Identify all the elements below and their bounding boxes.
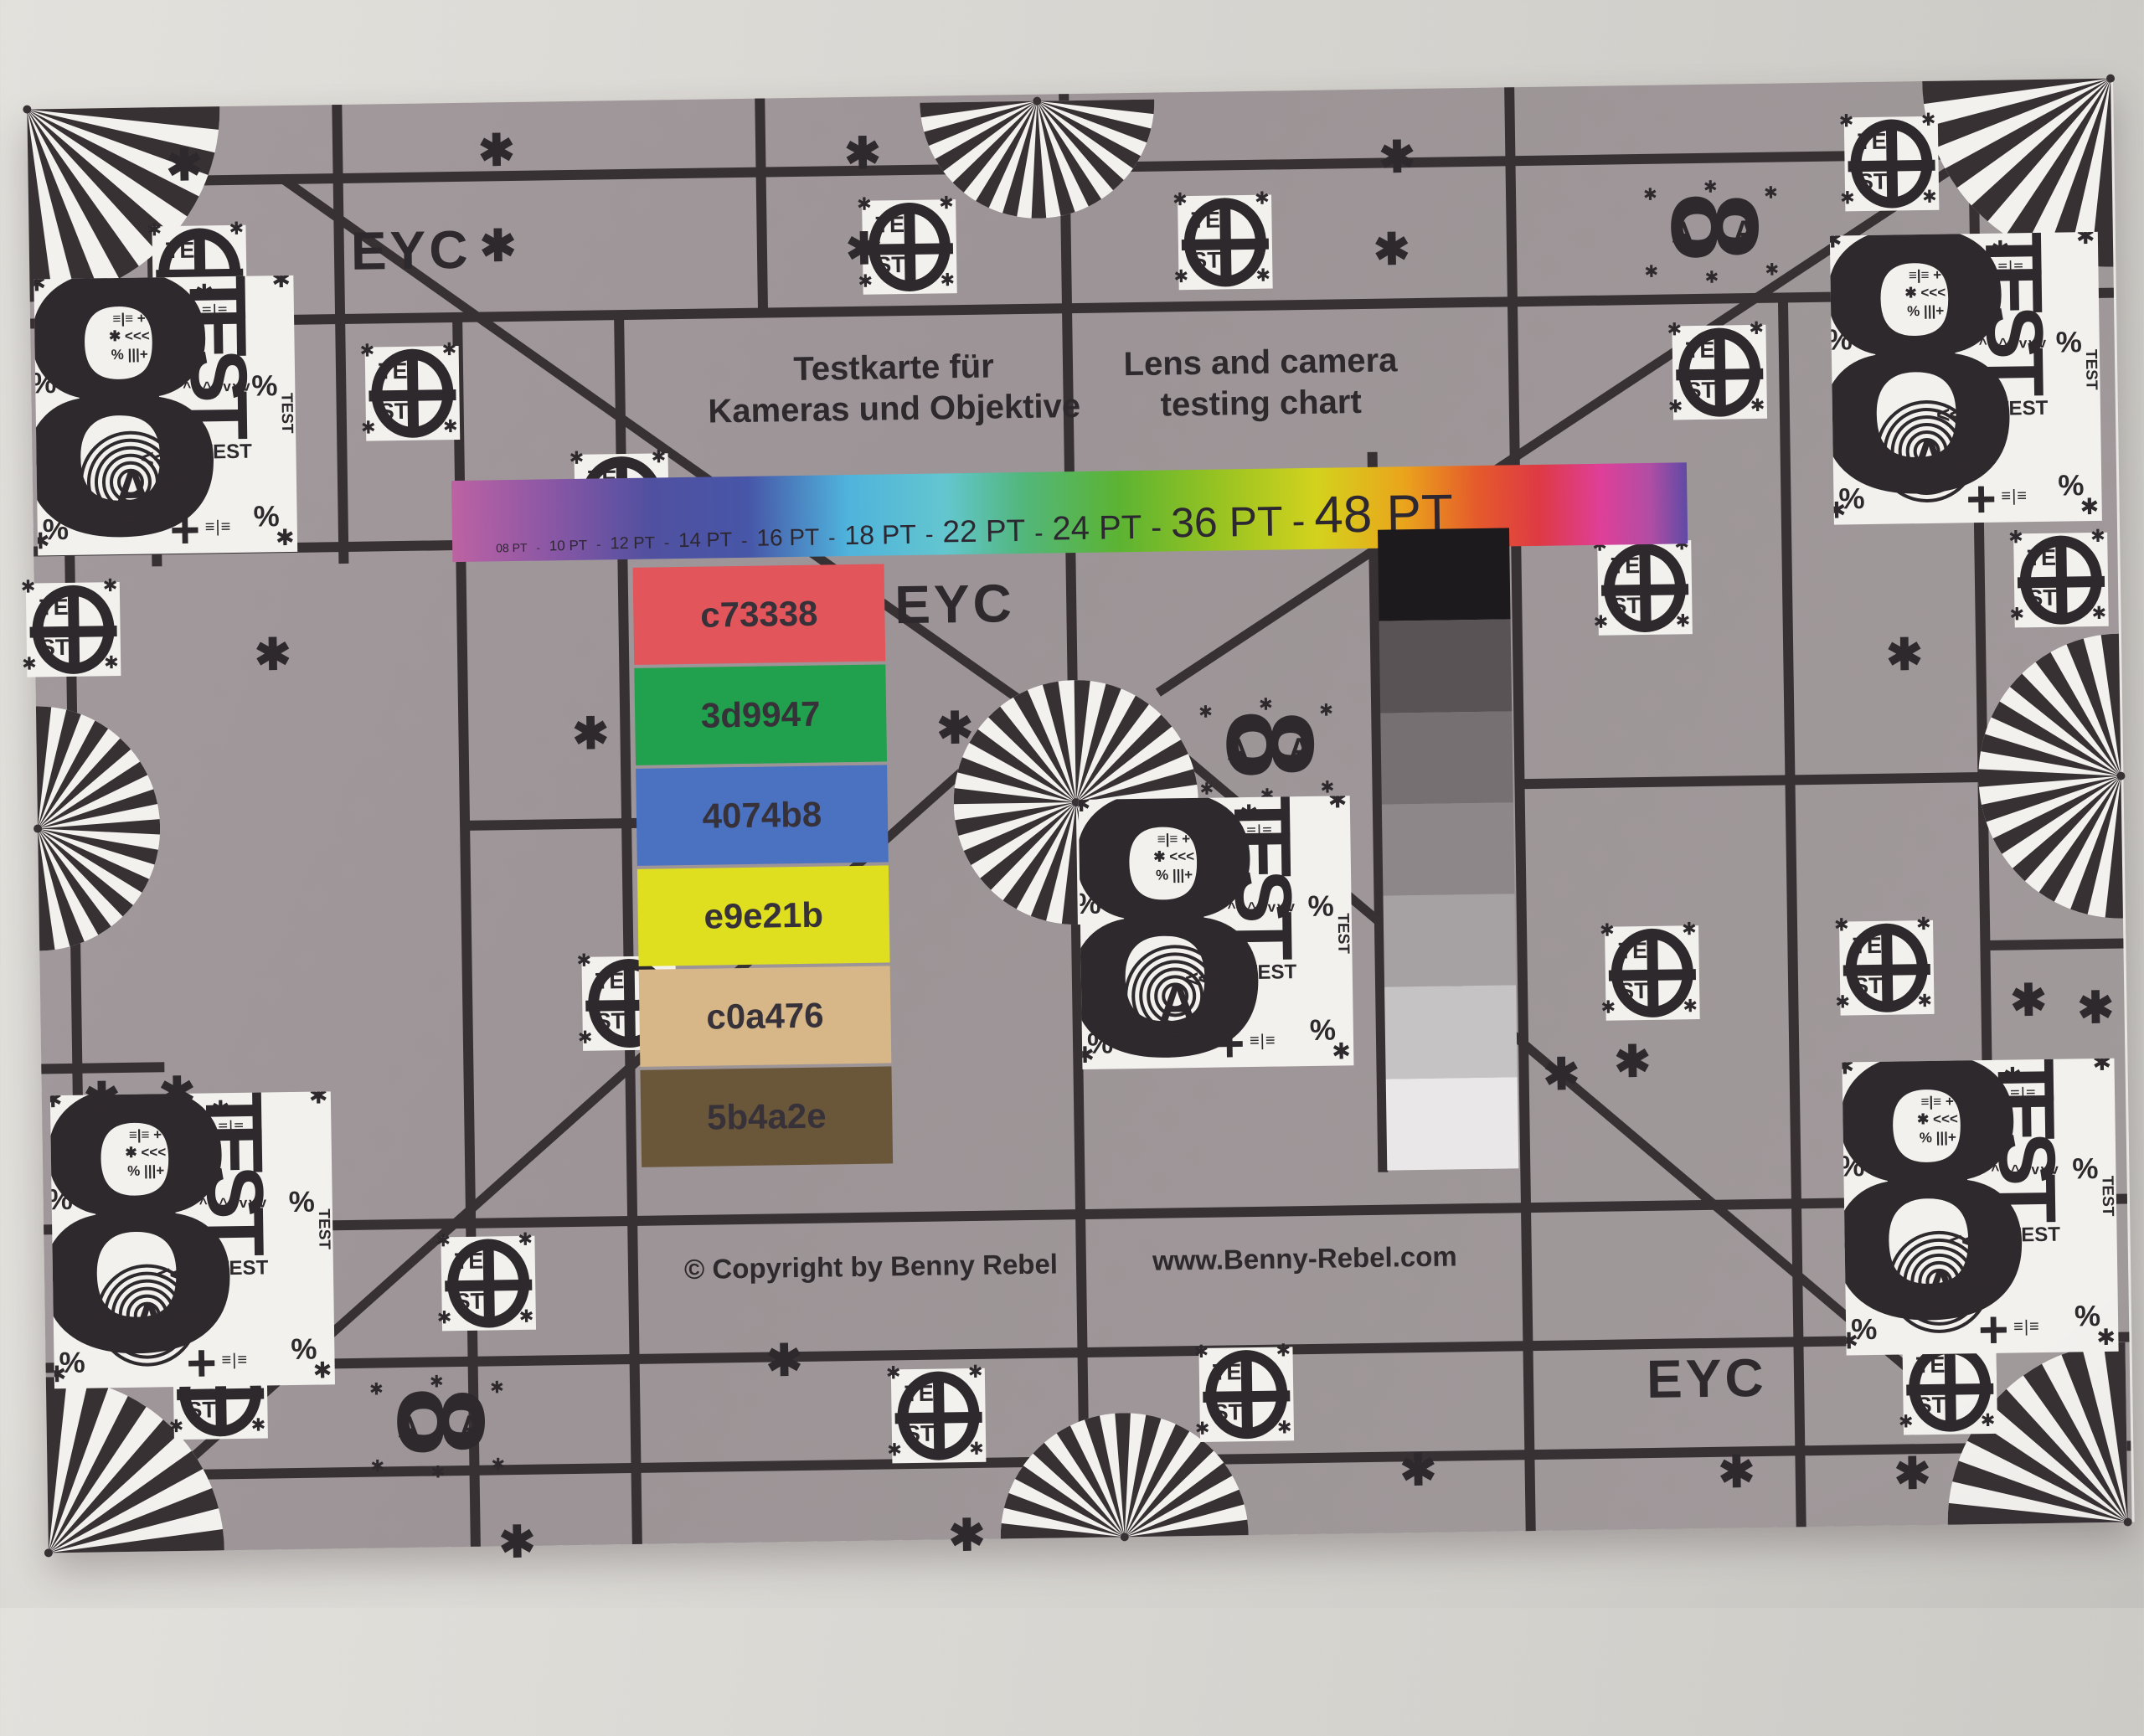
percent-mark: % [2055, 326, 2082, 359]
asterisk-icon: ✱ [1173, 266, 1188, 287]
asterisk-icon: ✱ [370, 1455, 384, 1476]
asterisk-icon: ✱ [1749, 318, 1764, 339]
barcode-mark: ≡|≡ [2001, 487, 2028, 506]
resolution-test-block: 8≡|≡ +✱ <<<% |||+ATESTTESTTEST%%%%+++✱✱✱… [1842, 1059, 2118, 1356]
asterisk-icon: ✱ [50, 1091, 63, 1113]
test-registration-mark: TEST✱✱✱✱ [365, 346, 461, 441]
mini-eight-letter-a: A [1733, 214, 1755, 249]
mini-eight-mark: 8AA✱✱✱✱✱✱ [1647, 188, 1782, 276]
copyright-line: © Copyright by Benny Rebel [678, 1248, 1064, 1285]
asterisk-icon: ✱ [969, 1439, 984, 1460]
color-patch-label: c73338 [700, 594, 818, 636]
asterisk-icon: ✱ [313, 1357, 332, 1383]
asterisk-icon: ✱ [1172, 189, 1188, 210]
grid-line [465, 818, 638, 831]
asterisk-icon: ✱ [271, 276, 291, 293]
resolution-test-block: 8≡|≡ +✱ <<<% |||+ATESTTESTTEST%%%%+++✱✱✱… [33, 276, 297, 556]
color-patch-column: c733383d99474074b8e9e21bc0a4765b4a2e [633, 564, 894, 1170]
asterisk-icon: ✱ [1320, 777, 1334, 798]
test-mark-te-label: TE [455, 1249, 484, 1275]
test-mark-st-label: ST [1853, 973, 1883, 1000]
test-mark-te-label: TE [904, 1381, 934, 1408]
asterisk-mark: ✱ [83, 1074, 120, 1125]
asterisk-icon: ✱ [519, 1306, 534, 1327]
asterisk-icon: ✱ [939, 193, 954, 214]
asterisk-icon: ✱ [2096, 1325, 2116, 1351]
test-mark-te-label: TE [379, 358, 408, 385]
grayscale-step [1384, 986, 1518, 1079]
cross-mark: + [1079, 957, 1102, 1010]
grid-line [1519, 772, 1982, 789]
block-right-test-word: TEST [314, 1208, 335, 1351]
arrows-down-icon: vvv [223, 379, 252, 396]
block-clutter-line: ✱ <<< [100, 1143, 192, 1162]
percent-mark: % [50, 1183, 73, 1217]
asterisk-icon: ✱ [229, 219, 244, 240]
asterisk-icon: ✱ [1259, 694, 1273, 715]
color-patch: 5b4a2e [640, 1066, 893, 1167]
asterisk-icon: ✱ [1765, 260, 1779, 281]
block-clutter-line: % |||+ [1879, 301, 1971, 321]
mini-eight-glyph: 8 [1652, 192, 1776, 262]
asterisk-mark: ✱ [1399, 1445, 1436, 1496]
block-small-test-word: TEST [1997, 397, 2049, 421]
asterisk-icon: ✱ [1922, 187, 1937, 208]
test-registration-mark: TEST✱✱✱✱ [441, 1236, 536, 1332]
eyc-center: EYC [894, 572, 1016, 636]
cross-mark: + [1842, 1219, 1865, 1272]
asterisk-icon: ✱ [1600, 920, 1615, 941]
percent-mark: % [251, 369, 278, 403]
asterisk-icon: ✱ [578, 1028, 593, 1048]
asterisk-icon: ✱ [569, 448, 584, 469]
block-clutter-line: % |||+ [100, 1161, 192, 1180]
block-clutter-line: % |||+ [1892, 1128, 1984, 1147]
grayscale-step [1380, 711, 1513, 805]
asterisk-icon: ✱ [1683, 996, 1698, 1017]
percent-mark: % [33, 367, 56, 400]
block-clutter-line: ✱ <<< [1128, 847, 1220, 867]
arrows-down-icon: vvv [2031, 1162, 2060, 1179]
asterisk-icon: ✱ [1277, 1417, 1292, 1438]
asterisk-mark: ✱ [1543, 1049, 1580, 1100]
test-mark-st-label: ST [379, 399, 409, 425]
test-mark-st-label: ST [905, 1421, 935, 1448]
cross-mark: + [1830, 393, 1853, 446]
test-mark-st-label: ST [1619, 978, 1648, 1005]
barcode-mark: ≡|≡ [205, 518, 232, 537]
test-registration-mark: TEST✱✱✱✱ [2013, 533, 2109, 628]
percent-mark: % [1842, 1150, 1864, 1183]
test-mark-te-label: TE [595, 968, 625, 995]
cross-mark: + [33, 436, 57, 489]
asterisk-icon: ✱ [1834, 914, 1849, 935]
asterisk-icon: ✱ [1840, 188, 1855, 209]
barcode-mark: ≡|≡ [1250, 1032, 1276, 1051]
mini-eight-letter-a: A [1671, 214, 1693, 250]
asterisk-icon: ✱ [430, 1371, 444, 1392]
block-right-test-word: TEST [2081, 349, 2102, 492]
color-patch-label: 4074b8 [702, 795, 822, 837]
font-size-separator: - [664, 535, 670, 551]
asterisk-icon: ✱ [1839, 111, 1854, 131]
asterisk-icon: ✱ [33, 276, 46, 297]
asterisk-icon: ✱ [1195, 1419, 1210, 1440]
asterisk-icon: ✱ [2090, 526, 2105, 547]
asterisk-icon: ✱ [435, 1230, 451, 1251]
title-english-line1: Lens and camera [1009, 338, 1513, 387]
percent-mark: % [1307, 890, 1334, 924]
block-clutter-line: ✱ <<< [1879, 283, 1971, 302]
test-mark-st-label: ST [187, 1397, 216, 1424]
asterisk-icon: ✱ [1668, 396, 1683, 417]
grayscale-step [1382, 802, 1515, 896]
cross-mark: + [111, 276, 142, 318]
asterisk-icon: ✱ [1193, 1342, 1209, 1363]
spiral-letter-a: A [130, 1293, 168, 1353]
asterisk-mark: ✱ [1614, 1037, 1651, 1088]
block-small-test-word: TEST [1245, 961, 1297, 985]
test-mark-st-label: ST [455, 1289, 484, 1316]
color-patch-label: 3d9947 [701, 694, 821, 736]
block-clutter-line: % |||+ [1128, 865, 1220, 884]
asterisk-icon: ✱ [1079, 796, 1091, 817]
test-mark-te-label: TE [1618, 938, 1647, 965]
font-size-label: 36 PT [1171, 500, 1283, 543]
arrows-up-icon: ^^^ [183, 379, 213, 396]
asterisk-icon: ✱ [1593, 612, 1608, 633]
asterisk-icon: ✱ [651, 446, 666, 467]
color-patch: 4074b8 [636, 765, 889, 865]
test-registration-mark: TEST✱✱✱✱ [891, 1368, 987, 1464]
color-patch: c73338 [633, 564, 886, 664]
font-size-separator: - [828, 528, 836, 549]
test-registration-mark: TEST✱✱✱✱ [1198, 1347, 1294, 1442]
font-size-separator: - [741, 532, 748, 550]
mini-eight-letter-a: A [397, 1409, 420, 1445]
block-small-test-word: TEST [2008, 1223, 2060, 1248]
color-patch: 3d9947 [634, 664, 887, 765]
barcode-mark: ≡|≡ [2013, 1317, 2040, 1337]
test-registration-mark: TEST✱✱✱✱ [1839, 920, 1935, 1016]
mini-eight-glyph: 8 [1207, 708, 1332, 779]
asterisk-icon: ✱ [1842, 1059, 1854, 1080]
arrows-down-icon: vvv [2019, 335, 2049, 353]
spiral-letter-a: A [1922, 1260, 1961, 1320]
grayscale-step [1378, 528, 1511, 621]
resolution-test-block: 8≡|≡ +✱ <<<% |||+ATESTTESTTEST%%%%+++✱✱✱… [1830, 232, 2102, 525]
eyc-bottom-right: EYC [1647, 1347, 1768, 1410]
asterisk-mark: ✱ [158, 1069, 195, 1120]
asterisk-icon: ✱ [103, 575, 118, 596]
decor-layer: TEST✱✱✱✱TEST✱✱✱✱TEST✱✱✱✱TEST✱✱✱✱TEST✱✱✱✱… [27, 79, 2131, 1553]
font-size-separator: - [925, 523, 934, 548]
asterisk-mark: ✱ [845, 224, 882, 275]
asterisk-mark: ✱ [1718, 1447, 1755, 1498]
test-registration-mark: TEST✱✱✱✱ [26, 582, 121, 677]
block-clutter-line: ✱ <<< [83, 327, 175, 346]
font-size-label: 18 PT [844, 521, 916, 549]
asterisk-mark: ✱ [2077, 983, 2114, 1034]
asterisk-icon: ✱ [1199, 779, 1214, 800]
barcode-mark: ≡|≡ [1997, 258, 2024, 277]
siemens-star-fan [1920, 0, 2144, 270]
mini-eight-mark: 8AA✱✱✱✱✱✱ [1202, 704, 1337, 793]
cross-mark: + [127, 1091, 158, 1135]
asterisk-icon: ✱ [1830, 497, 1847, 523]
font-size-label: 08 PT [496, 542, 528, 554]
asterisk-icon: ✱ [1764, 183, 1778, 203]
mini-eight-letter-a: A [1227, 732, 1250, 767]
asterisk-icon: ✱ [2092, 1059, 2111, 1076]
asterisk-icon: ✱ [940, 270, 955, 291]
test-registration-mark: TEST✱✱✱✱ [1597, 540, 1693, 636]
asterisk-icon: ✱ [2076, 232, 2095, 250]
asterisk-mark: ✱ [936, 703, 973, 755]
font-size-label: 16 PT [756, 526, 819, 550]
title-english: Lens and camera testing chart [1009, 338, 1513, 427]
asterisk-icon: ✱ [1276, 1340, 1291, 1361]
test-mark-st-label: ST [1192, 247, 1221, 274]
arrows-left-icon: <<< [1936, 401, 1976, 429]
eyc-top-left: EYC [350, 219, 472, 282]
font-size-separator: - [596, 538, 601, 552]
asterisk-icon: ✱ [491, 1454, 505, 1475]
block-right-test-word: TEST [276, 393, 297, 535]
arrows-left-icon: <<< [140, 445, 179, 472]
asterisk-icon: ✱ [369, 1378, 384, 1399]
asterisk-icon: ✱ [361, 417, 376, 438]
arrows-up-icon: ^^^ [1228, 899, 1258, 917]
asterisk-icon: ✱ [887, 1440, 902, 1460]
asterisk-mark: ✱ [478, 126, 515, 177]
grayscale-step [1379, 620, 1513, 713]
block-clutter-line: % |||+ [84, 344, 176, 363]
asterisk-icon: ✱ [1255, 265, 1270, 286]
percent-mark: % [2072, 1152, 2099, 1186]
asterisk-icon: ✱ [430, 1461, 445, 1482]
asterisk-icon: ✱ [2091, 603, 2106, 624]
mini-eight-mark: 8AA✱✱✱✱✱✱ [373, 1382, 508, 1471]
cross-mark: + [186, 1337, 217, 1388]
asterisk-icon: ✱ [147, 219, 162, 240]
color-patch: c0a476 [639, 966, 892, 1066]
asterisk-mark: ✱ [572, 708, 609, 760]
asterisk-mark: ✱ [1886, 630, 1923, 681]
font-size-label: 22 PT [942, 515, 1025, 547]
siemens-star-fan [1976, 631, 2144, 920]
font-size-label: 24 PT [1052, 511, 1142, 546]
asterisk-mark: ✱ [1379, 132, 1415, 183]
asterisk-icon: ✱ [518, 1229, 533, 1250]
siemens-star-fan [0, 704, 162, 952]
asterisk-icon: ✱ [1704, 267, 1719, 288]
asterisk-icon: ✱ [359, 340, 374, 361]
asterisk-icon: ✱ [1899, 1411, 1914, 1432]
block-clutter-line: ✱ <<< [1891, 1110, 1983, 1129]
arrows-left-icon: <<< [157, 1261, 196, 1289]
asterisk-icon: ✱ [1981, 1410, 1996, 1431]
asterisk-icon: ✱ [1835, 992, 1850, 1012]
cross-mark: + [169, 505, 200, 556]
asterisk-mark: ✱ [2010, 976, 2047, 1027]
spiral-letter-a: A [1909, 430, 1948, 490]
arrows-left-icon: <<< [1948, 1228, 1987, 1255]
barcode-mark: ≡|≡ [1246, 822, 1273, 842]
test-registration-mark: TEST✱✱✱✱ [1844, 116, 1940, 212]
test-mark-te-label: TE [1916, 1352, 1946, 1379]
cross-mark: + [1156, 796, 1187, 838]
asterisk-icon: ✱ [1703, 177, 1718, 198]
test-mark-st-label: ST [40, 635, 70, 662]
asterisk-icon: ✱ [1319, 700, 1333, 721]
mini-eight-letter-a: A [459, 1409, 482, 1444]
asterisk-icon: ✱ [1328, 796, 1348, 813]
asterisk-icon: ✱ [1830, 232, 1842, 254]
font-size-separator: - [1151, 512, 1162, 544]
color-patch-label: e9e21b [703, 895, 823, 937]
asterisk-icon: ✱ [2080, 494, 2099, 520]
asterisk-icon: ✱ [169, 1416, 184, 1437]
barcode-mark: ≡|≡ [202, 301, 229, 321]
asterisk-icon: ✱ [276, 525, 295, 551]
asterisk-icon: ✱ [22, 653, 37, 674]
resolution-test-block: 8≡|≡ +✱ <<<% |||+ATESTTESTTEST%%%%+++✱✱✱… [50, 1091, 335, 1388]
grid-line [41, 1062, 164, 1074]
test-mark-st-label: ST [1213, 1399, 1242, 1426]
font-size-label: 10 PT [549, 538, 588, 554]
asterisk-icon: ✱ [1921, 110, 1936, 131]
asterisk-icon: ✱ [576, 950, 591, 971]
test-mark-te-label: TE [1191, 207, 1220, 234]
grayscale-wedge [1378, 528, 1518, 1170]
asterisk-mark: ✱ [1894, 1449, 1930, 1500]
arrows-left-icon: <<< [1185, 965, 1224, 992]
resolution-test-block: 8≡|≡ +✱ <<<% |||+ATESTTESTTEST%%%%+++✱✱✱… [1079, 796, 1354, 1069]
test-mark-te-label: TE [1686, 337, 1715, 364]
block-small-test-word: TEST [217, 1256, 269, 1280]
asterisk-icon: ✱ [21, 576, 36, 597]
test-mark-st-label: ST [1858, 169, 1888, 196]
asterisk-icon: ✱ [857, 194, 872, 215]
arrows-up-icon: ^^^ [1979, 336, 2009, 353]
asterisk-icon: ✱ [1917, 991, 1932, 1012]
color-patch: e9e21b [637, 865, 890, 966]
asterisk-icon: ✱ [968, 1362, 983, 1383]
siemens-star-fan [918, 0, 1156, 220]
color-patch-label: c0a476 [706, 996, 824, 1038]
asterisk-icon: ✱ [2008, 527, 2023, 548]
test-mark-te-label: TE [2027, 545, 2056, 572]
test-chart: TEST✱✱✱✱TEST✱✱✱✱TEST✱✱✱✱TEST✱✱✱✱TEST✱✱✱✱… [27, 79, 2134, 1553]
cross-mark: + [1978, 1305, 2009, 1356]
arrows-down-icon: vvv [240, 1194, 269, 1212]
test-mark-st-label: ST [1916, 1393, 1946, 1419]
grayscale-step [1383, 894, 1516, 987]
photo-scene: { "scene": { "wall_color_top": "#e3e1dc"… [0, 0, 2144, 1608]
asterisk-icon: ✱ [1675, 610, 1690, 631]
title-english-line2: testing chart [1009, 379, 1513, 428]
font-size-label: 14 PT [678, 530, 732, 551]
font-size-separator: - [1034, 520, 1044, 546]
grid-line [1985, 939, 2123, 950]
asterisk-icon: ✱ [309, 1091, 328, 1109]
test-registration-mark: TEST✱✱✱✱ [1605, 925, 1700, 1021]
test-mark-st-label: ST [2028, 585, 2057, 612]
test-mark-te-label: TE [39, 595, 69, 621]
test-mark-st-label: ST [1611, 593, 1641, 620]
asterisk-mark: ✱ [498, 1517, 535, 1569]
asterisk-mark: ✱ [166, 140, 203, 191]
asterisk-icon: ✱ [1667, 319, 1682, 340]
barcode-mark: ≡|≡ [218, 1118, 245, 1137]
test-mark-te-label: TE [1858, 129, 1887, 156]
test-mark-te-label: TE [166, 238, 195, 265]
asterisk-icon: ✱ [437, 1307, 452, 1328]
barcode-mark: ≡|≡ [2010, 1084, 2037, 1104]
cross-mark: + [1966, 474, 1997, 525]
font-size-separator: - [536, 543, 540, 554]
asterisk-icon: ✱ [1644, 261, 1658, 282]
cross-mark: + [1907, 232, 1938, 275]
test-mark-te-label: TE [1611, 553, 1640, 580]
asterisk-icon: ✱ [1600, 997, 1616, 1018]
asterisk-icon: ✱ [2009, 604, 2024, 625]
test-mark-te-label: TE [1853, 933, 1882, 960]
asterisk-mark: ✱ [255, 630, 291, 681]
website-line: www.Benny-Rebel.com [1112, 1240, 1498, 1278]
asterisk-icon: ✱ [1255, 188, 1270, 209]
asterisk-icon: ✱ [251, 1415, 266, 1436]
grid-line [755, 99, 768, 313]
test-registration-mark: TEST✱✱✱✱ [1672, 325, 1767, 420]
percent-mark: % [1079, 888, 1101, 921]
asterisk-icon: ✱ [441, 339, 456, 360]
mini-eight-letter-a: A [1289, 731, 1312, 766]
test-mark-st-label: ST [595, 1008, 625, 1035]
mini-eight-glyph: 8 [378, 1386, 502, 1456]
test-registration-mark: TEST✱✱✱✱ [1178, 195, 1273, 291]
block-right-test-word: TEST [2098, 1176, 2119, 1318]
asterisk-mark: ✱ [479, 221, 516, 272]
arrows-down-icon: vvv [1268, 899, 1297, 916]
font-size-label: 12 PT [610, 535, 655, 553]
test-mark-te-label: TE [1213, 1359, 1242, 1386]
asterisk-icon: ✱ [1750, 395, 1765, 416]
asterisk-icon: ✱ [886, 1363, 901, 1383]
asterisk-mark: ✱ [844, 128, 881, 179]
asterisk-mark: ✱ [765, 1336, 802, 1387]
asterisk-mark: ✱ [948, 1511, 985, 1562]
grayscale-step [1386, 1077, 1519, 1171]
percent-mark: % [288, 1186, 315, 1219]
siemens-star-fan [999, 1411, 1250, 1662]
asterisk-icon: ✱ [104, 652, 119, 673]
asterisk-icon: ✱ [1198, 702, 1213, 723]
barcode-mark: ≡|≡ [221, 1351, 248, 1370]
asterisk-icon: ✱ [1332, 1038, 1351, 1064]
asterisk-icon: ✱ [1643, 184, 1657, 205]
asterisk-icon: ✱ [443, 416, 458, 437]
test-mark-st-label: ST [1686, 378, 1715, 404]
block-right-test-word: TEST [1333, 913, 1354, 1055]
arrows-up-icon: ^^^ [1991, 1162, 2021, 1179]
font-size-separator: - [1291, 502, 1306, 542]
color-patch-label: 5b4a2e [707, 1096, 827, 1138]
cross-mark: + [1919, 1059, 1950, 1101]
cross-mark: + [50, 1253, 74, 1306]
cross-mark: + [1214, 1018, 1245, 1069]
